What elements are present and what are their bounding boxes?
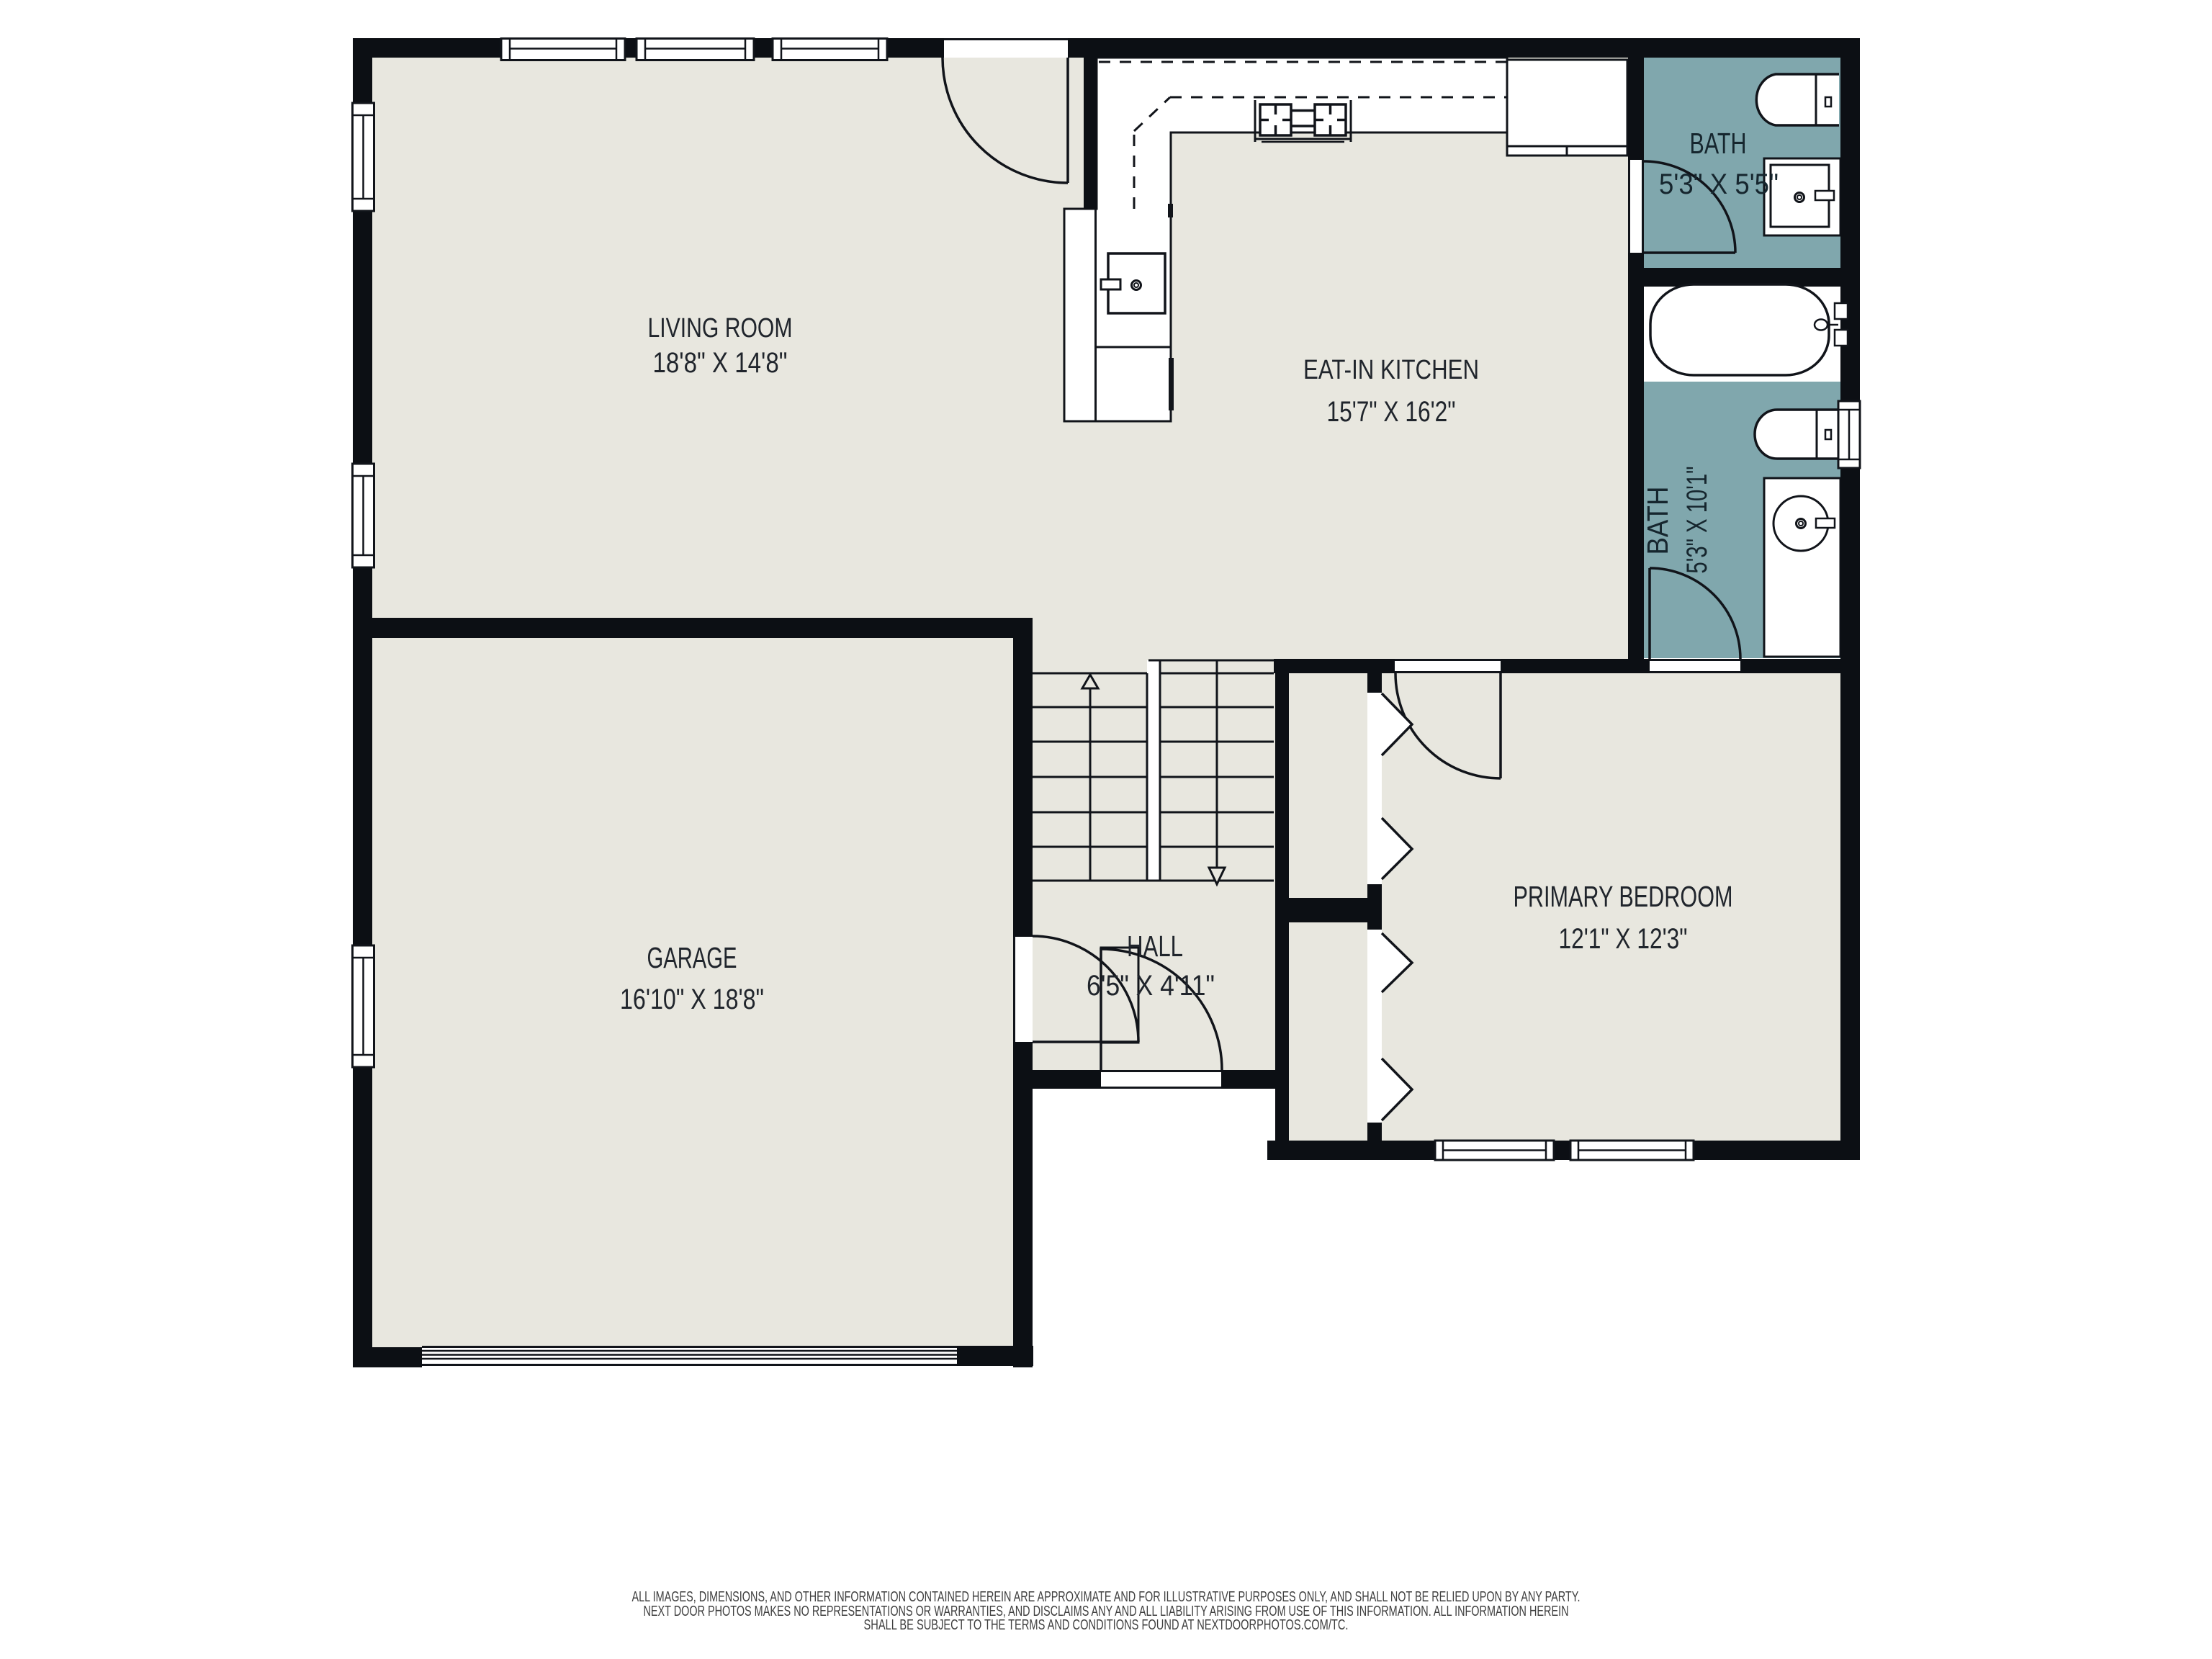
- svg-text:16'10" X 18'8": 16'10" X 18'8": [620, 984, 764, 1015]
- svg-text:12'1" X 12'3": 12'1" X 12'3": [1559, 923, 1688, 955]
- svg-text:5'3" X 5'5": 5'3" X 5'5": [1659, 168, 1779, 200]
- svg-text:6'5" X 4'11": 6'5" X 4'11": [1087, 970, 1215, 1002]
- svg-text:BATH: BATH: [1690, 127, 1747, 160]
- svg-text:SHALL BE SUBJECT TO THE TERMS: SHALL BE SUBJECT TO THE TERMS AND CONDIT…: [864, 1617, 1349, 1633]
- svg-text:EAT-IN KITCHEN: EAT-IN KITCHEN: [1303, 355, 1479, 385]
- svg-text:GARAGE: GARAGE: [647, 941, 737, 974]
- svg-text:18'8" X 14'8": 18'8" X 14'8": [653, 347, 788, 379]
- svg-text:5'3" X 10'1": 5'3" X 10'1": [1681, 467, 1713, 574]
- svg-text:PRIMARY BEDROOM: PRIMARY BEDROOM: [1514, 880, 1733, 913]
- svg-text:HALL: HALL: [1127, 930, 1183, 963]
- svg-text:BATH: BATH: [1641, 487, 1674, 555]
- svg-text:LIVING ROOM: LIVING ROOM: [648, 313, 793, 343]
- svg-text:15'7" X 16'2": 15'7" X 16'2": [1327, 396, 1456, 428]
